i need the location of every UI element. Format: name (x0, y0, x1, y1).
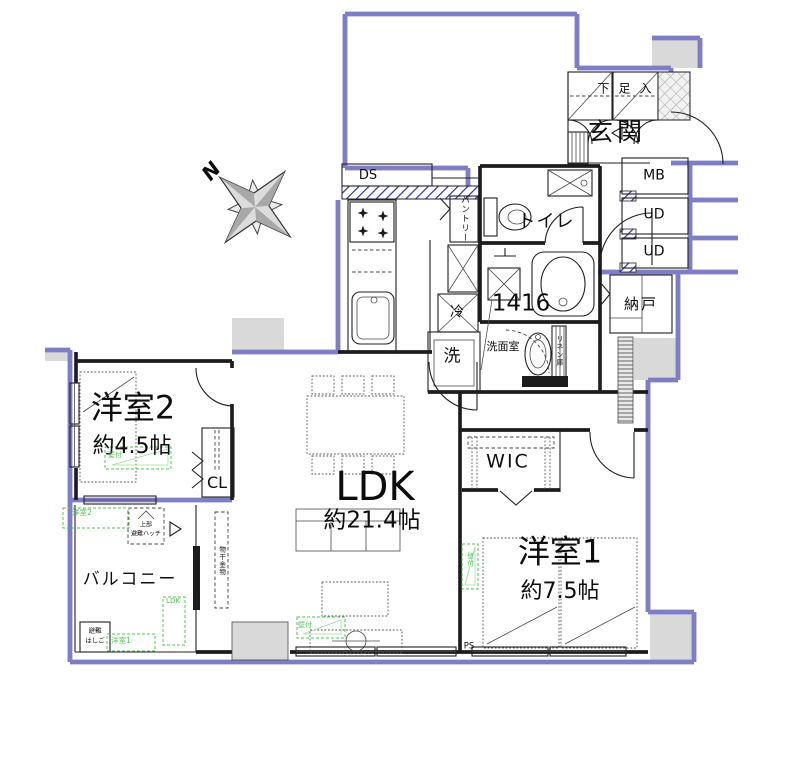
wall-mount-annotations (105, 447, 478, 638)
escape-hatch-label-line2: 避難ハッチ (131, 532, 161, 539)
room-label-balcony: バルコニー (83, 571, 178, 590)
hatched-wall-segments (342, 186, 636, 272)
compass-rose (220, 172, 290, 242)
label-ud-upper: UD (643, 207, 664, 222)
label-meter-box: MB (643, 168, 665, 183)
wall-mount-bedroom2-label: 壁付 (108, 452, 122, 460)
label-refrigerator: 冷 (450, 305, 464, 320)
label-shoe-cabinet: 下足入 (597, 82, 660, 95)
escape-ladder-label-line1: 避難 (89, 627, 102, 634)
escape-ladder-label-line2: はしご (85, 637, 105, 644)
sanitary-area (481, 170, 594, 387)
tv-board (310, 630, 402, 653)
label-closet: CL (207, 474, 227, 492)
label-bath-size: 1416 (492, 291, 551, 316)
room-label-bedroom1: 洋室1 (518, 534, 602, 569)
room-label-toilet: トイレ (518, 212, 575, 232)
floor-plan-drawing (0, 0, 792, 768)
room-label-ldk: LDK (335, 465, 414, 509)
balcony-sash (193, 546, 200, 610)
bedroom2-door-arc (196, 368, 232, 406)
coffee-table (322, 582, 388, 616)
room-label-entrance: 玄関 (588, 118, 646, 146)
wic-door-fold (500, 491, 532, 505)
label-ud-lower: UD (643, 244, 664, 259)
label-duct-space: DS (359, 169, 377, 183)
room-label-storage: 納戸 (624, 296, 658, 313)
escape-hatch-label-line1: 上部 (140, 523, 152, 530)
toilet-tank (484, 198, 497, 236)
balcony-direction-icon (170, 522, 181, 536)
label-linen-cabinet: リネン庫 (555, 335, 563, 367)
ac-outdoor-ldk-label: LDK (166, 598, 180, 606)
label-washing-machine: 洗 (444, 348, 461, 367)
label-laundry-hardware: 物干金物 (217, 546, 224, 576)
label-wic: WIC (486, 452, 530, 473)
ac-outdoor-bedroom2-label: 洋室2 (72, 509, 92, 517)
label-pantry: パントリー (459, 195, 468, 243)
label-ldk-size: 約21.4帖 (323, 508, 420, 533)
label-bedroom2-size: 約4.5帖 (93, 435, 172, 459)
wall-mount-bedroom1-label: 壁付 (465, 553, 472, 568)
ac-outdoor-bedroom1-label: 洋室1 (111, 637, 131, 645)
floor-plan: 玄関 下足入 MB UD UD 納戸 トイレ 1416 洗面室 洗 冷 パントリ… (0, 0, 792, 768)
wall-mount-ldk-label: 壁付 (298, 622, 312, 630)
room-label-bedroom2: 洋室2 (91, 390, 175, 425)
room-label-washroom: 洗面室 (487, 341, 520, 353)
dining-table (307, 396, 404, 454)
bedroom1-door-arc (590, 432, 634, 478)
label-bedroom1-size: 約7.5帖 (521, 580, 600, 604)
label-pipe-space: PS (464, 642, 475, 651)
meter-ud-column (600, 158, 688, 423)
